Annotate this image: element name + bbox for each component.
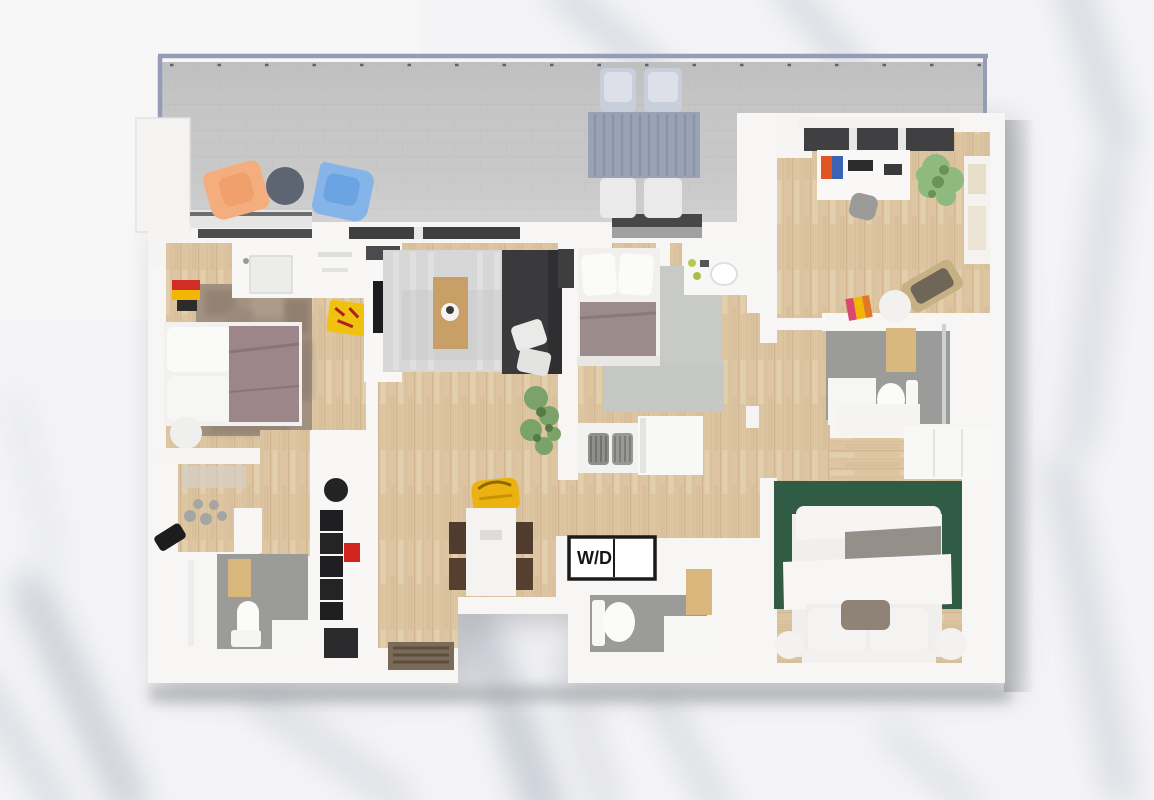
svg-text:W/D: W/D [577, 548, 612, 568]
